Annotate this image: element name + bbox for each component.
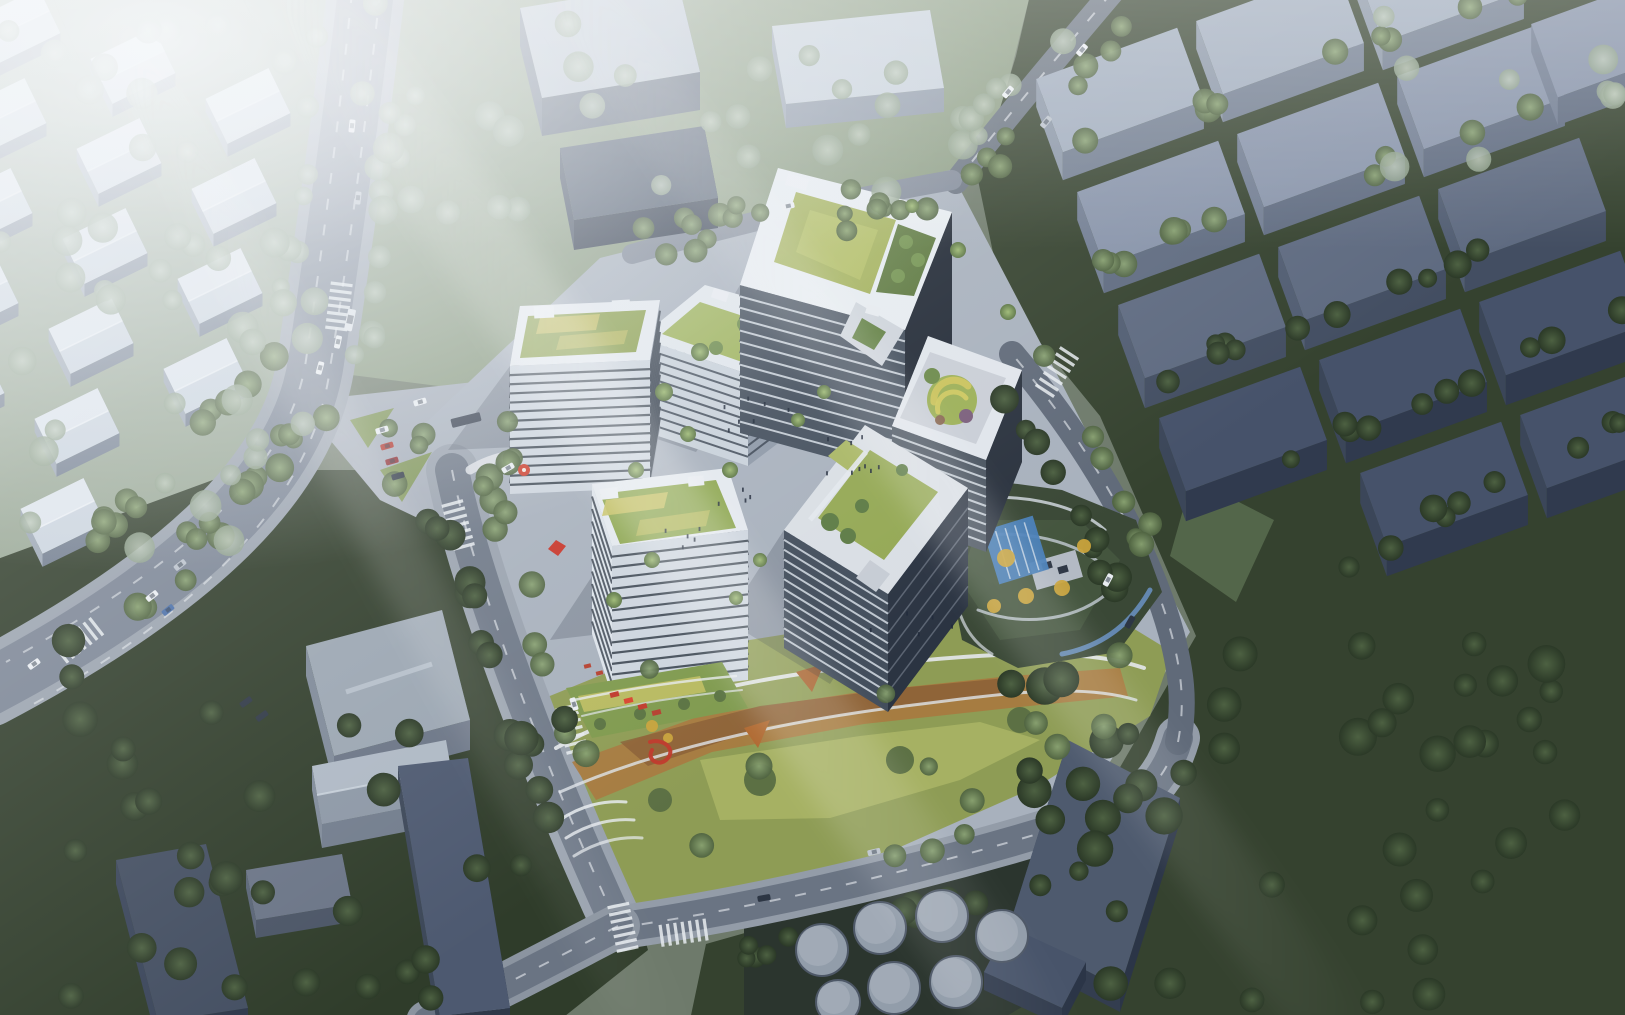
scene xyxy=(0,0,1625,1015)
atmosphere xyxy=(0,0,1625,1015)
aerial-site-rendering xyxy=(0,0,1625,1015)
